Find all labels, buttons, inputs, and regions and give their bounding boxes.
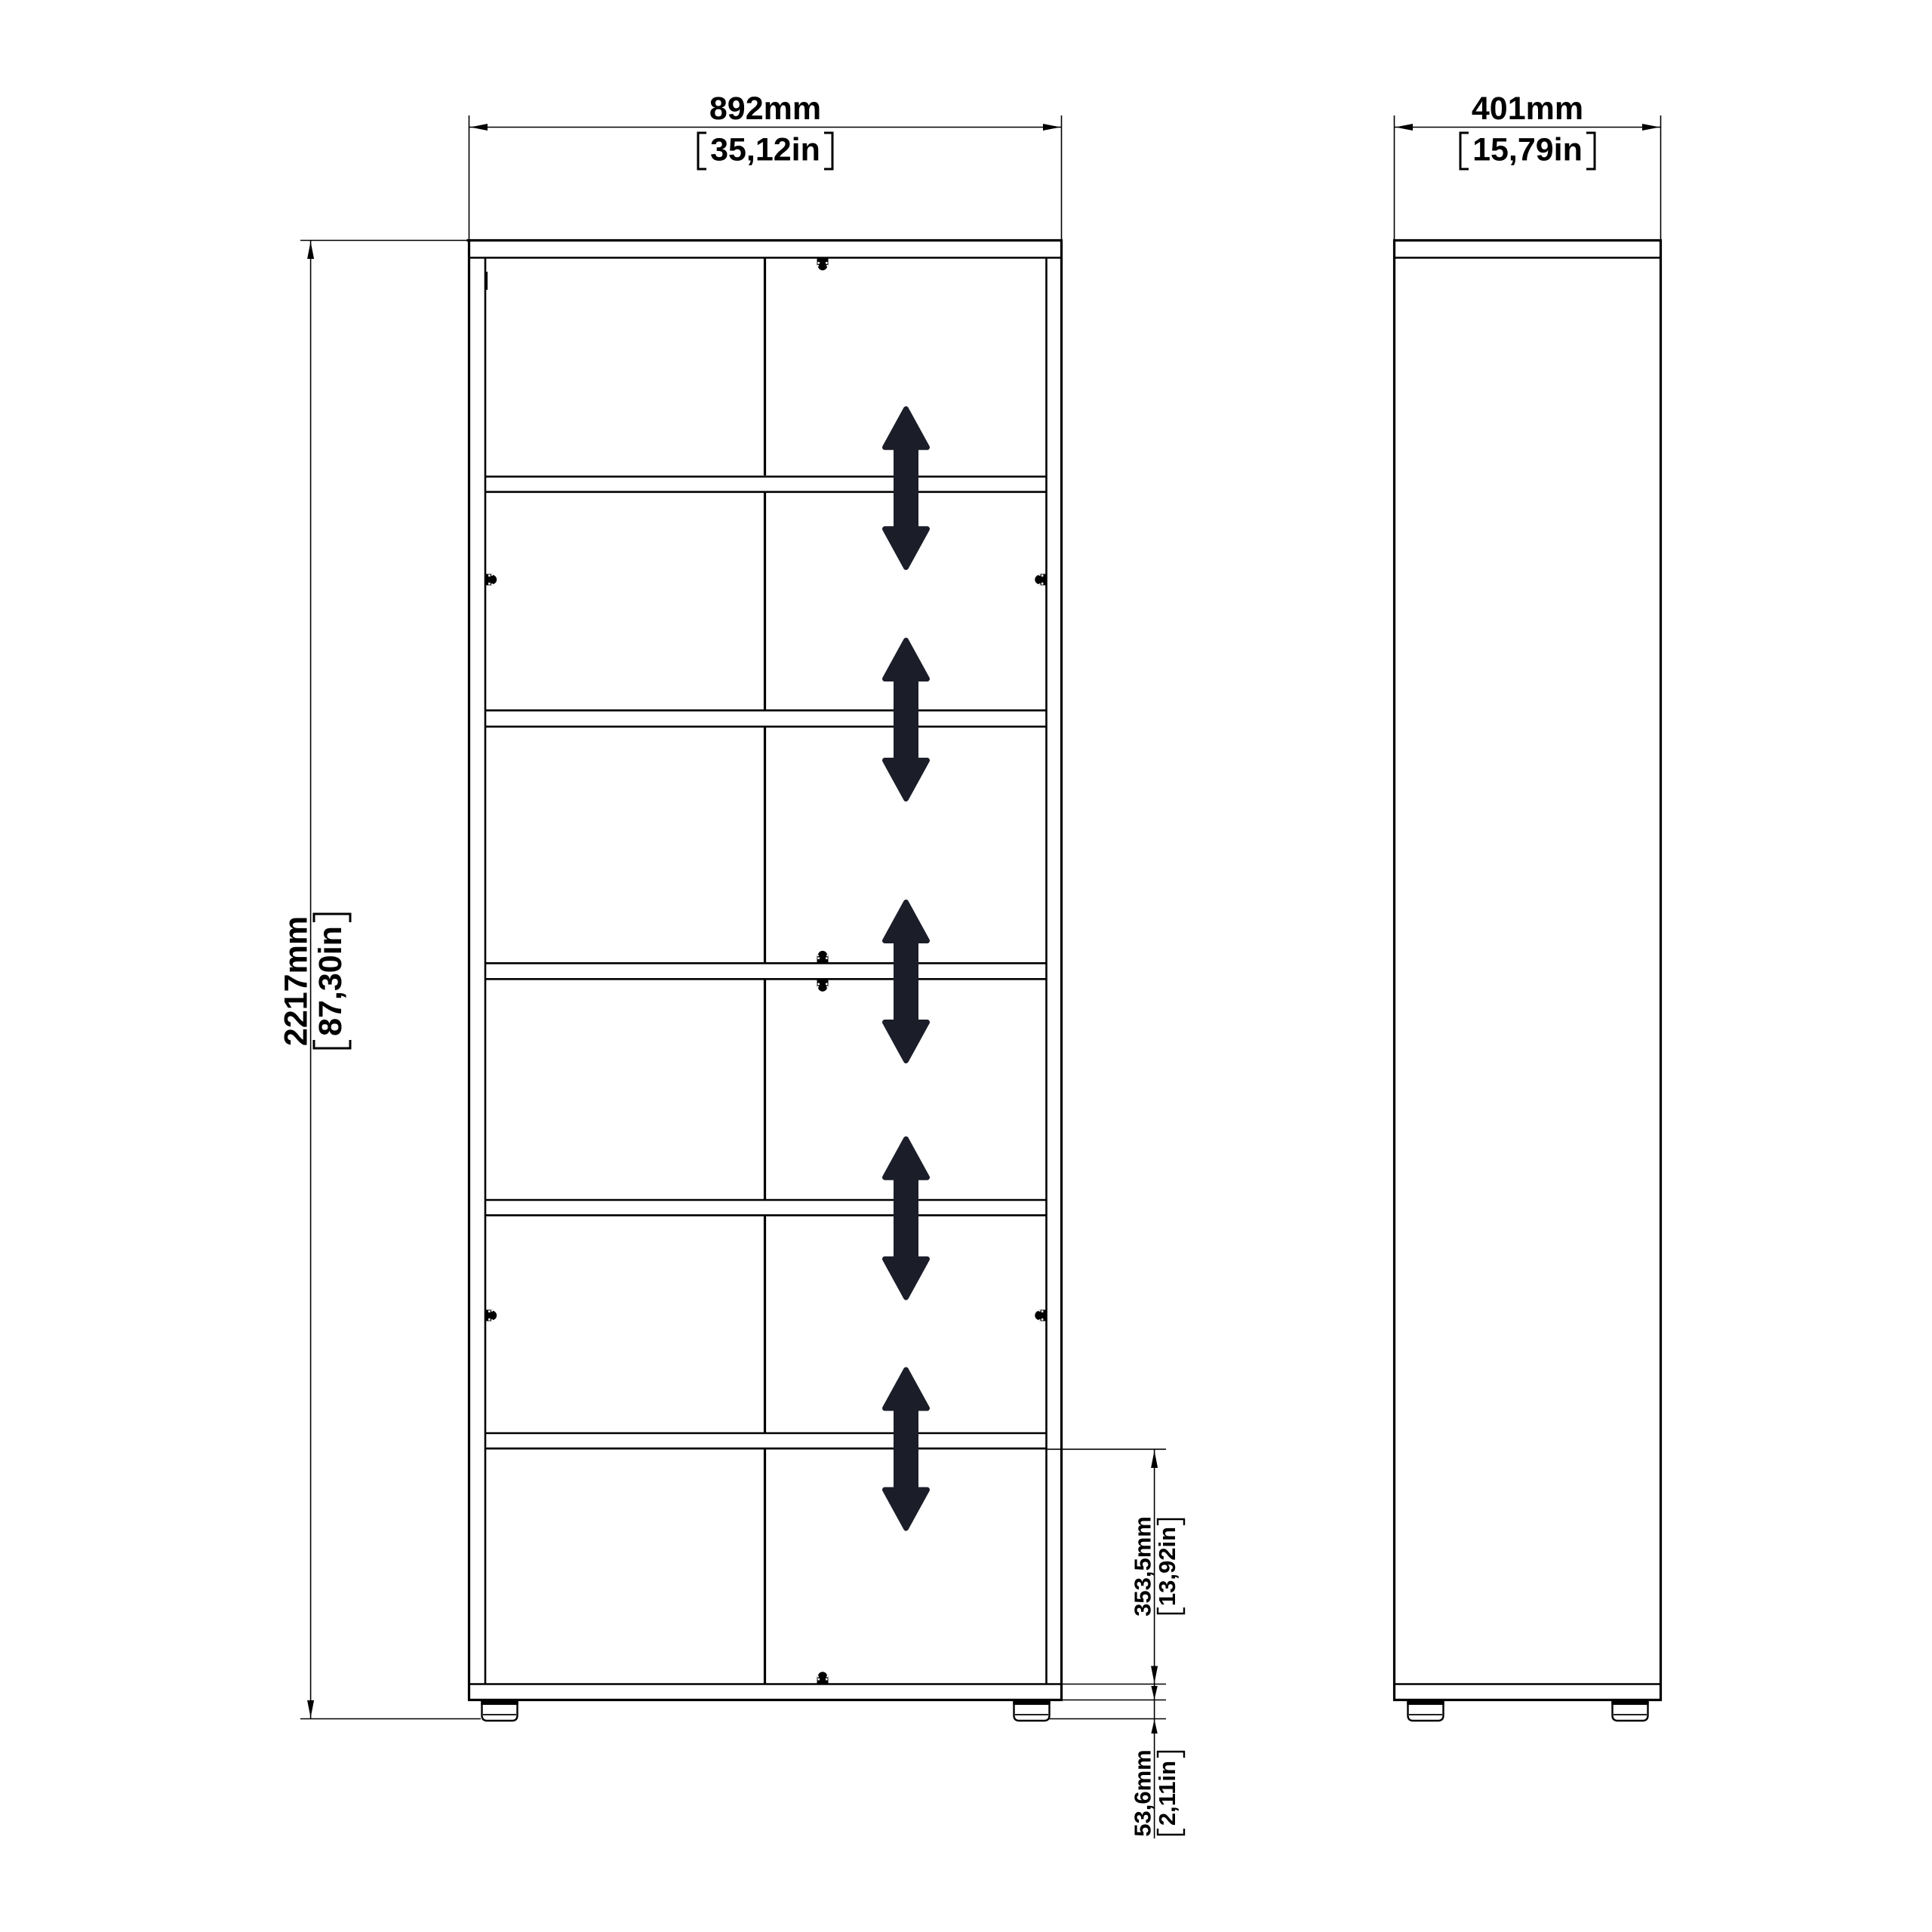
svg-text:15,79in: 15,79in	[1472, 132, 1583, 168]
svg-text:892mm: 892mm	[709, 91, 821, 127]
svg-text:2217mm: 2217mm	[278, 916, 315, 1046]
svg-text:401mm: 401mm	[1472, 91, 1583, 127]
svg-text:2,11in: 2,11in	[1154, 1761, 1180, 1826]
svg-text:35,12in: 35,12in	[710, 132, 820, 168]
svg-text:353,5mm: 353,5mm	[1130, 1516, 1156, 1617]
svg-text:13,92in: 13,92in	[1154, 1527, 1180, 1606]
svg-text:87,30in: 87,30in	[312, 926, 349, 1036]
svg-text:53,6mm: 53,6mm	[1130, 1749, 1156, 1836]
